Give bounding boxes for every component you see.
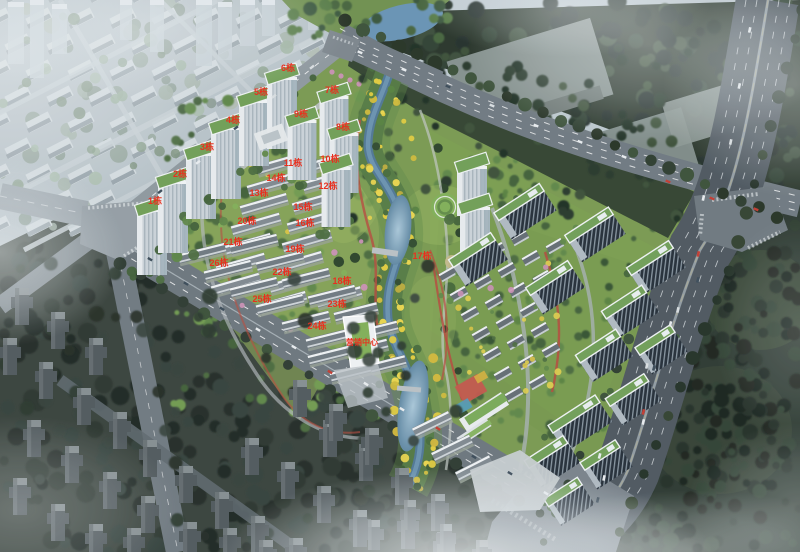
svg-text:18栋: 18栋 [332,275,351,286]
svg-text:3栋: 3栋 [200,141,214,152]
svg-text:4栋: 4栋 [226,114,240,125]
svg-text:23栋: 23栋 [327,298,346,309]
svg-text:15栋: 15栋 [293,201,312,212]
svg-text:24栋: 24栋 [307,320,326,331]
svg-text:5栋: 5栋 [254,86,268,97]
svg-text:2栋: 2栋 [173,168,187,179]
svg-text:6栋: 6栋 [281,62,295,73]
svg-text:营销中心: 营销中心 [346,337,378,347]
svg-text:16栋: 16栋 [295,217,314,228]
svg-text:9栋: 9栋 [294,108,308,119]
svg-text:11栋: 11栋 [284,157,303,168]
svg-text:19栋: 19栋 [285,243,304,254]
svg-text:12栋: 12栋 [318,180,337,191]
svg-text:7栋: 7栋 [325,84,339,95]
svg-text:1栋: 1栋 [148,195,162,206]
svg-text:17栋: 17栋 [412,250,431,261]
svg-text:22栋: 22栋 [272,266,291,277]
svg-text:14栋: 14栋 [266,172,285,183]
svg-text:10栋: 10栋 [320,153,339,164]
svg-text:21栋: 21栋 [223,236,242,247]
svg-text:13栋: 13栋 [249,187,268,198]
svg-text:20栋: 20栋 [237,215,256,226]
svg-text:25栋: 25栋 [252,293,271,304]
svg-text:26栋: 26栋 [209,257,228,268]
svg-text:8栋: 8栋 [336,121,350,132]
